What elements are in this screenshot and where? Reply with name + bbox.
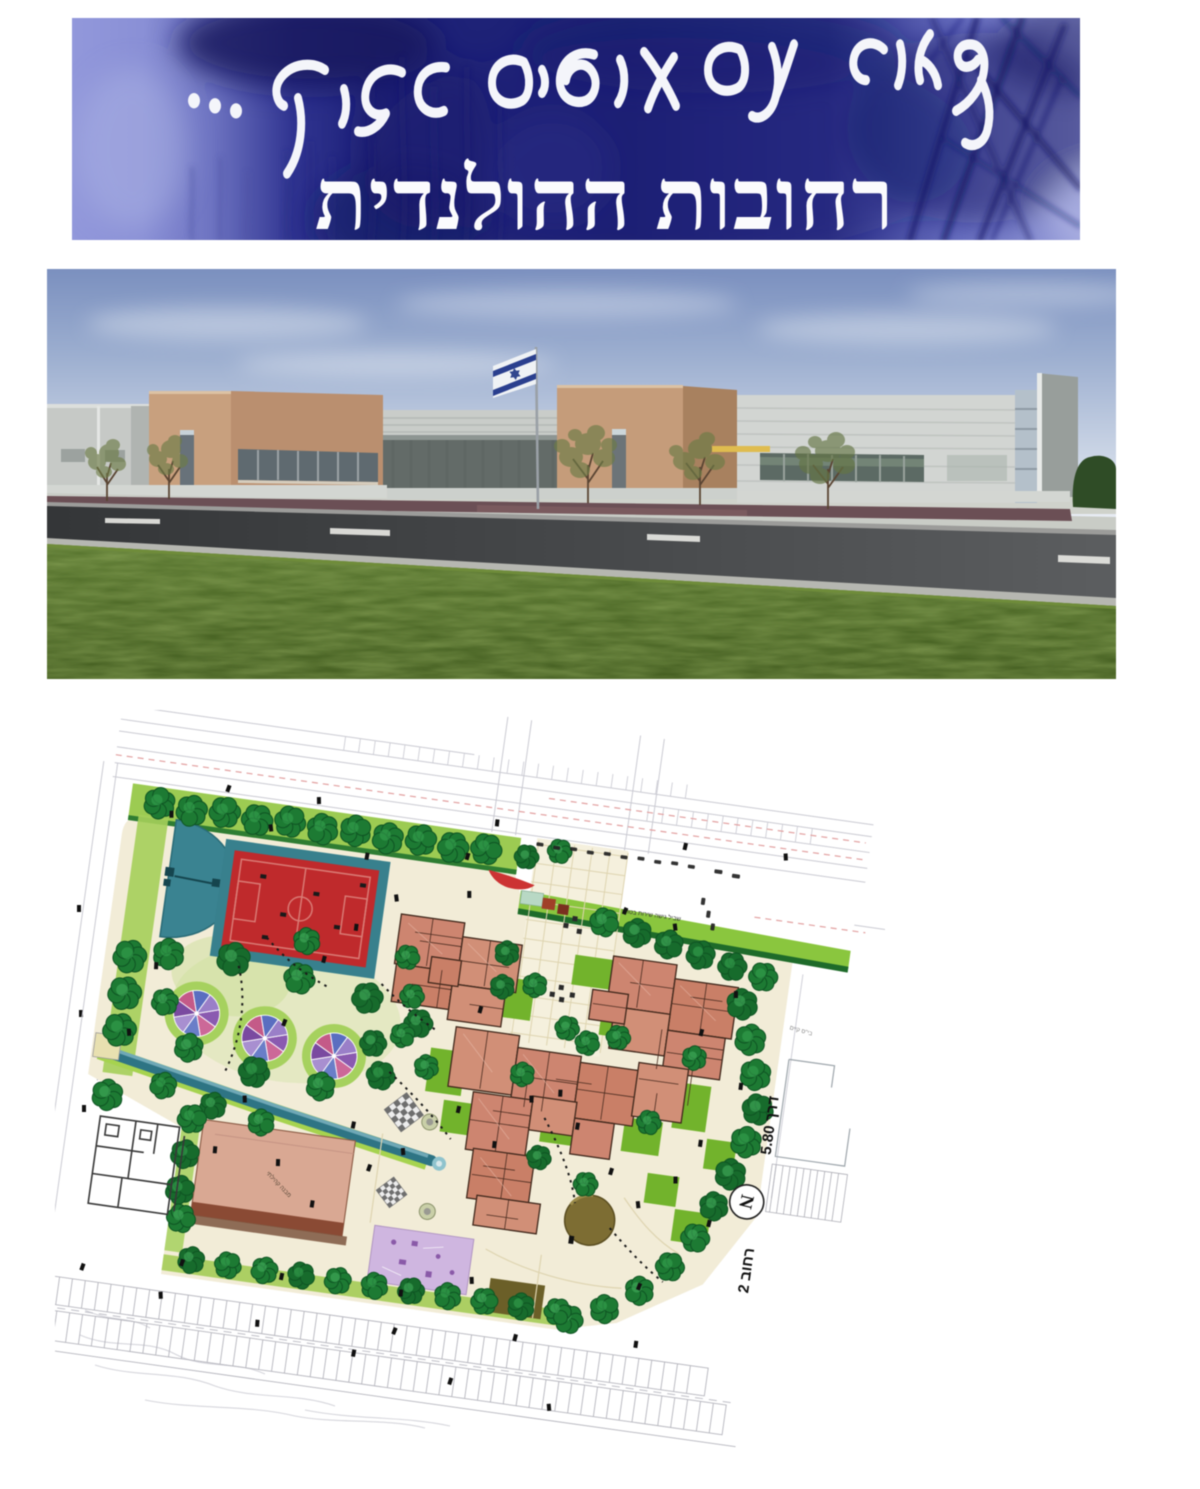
svg-text:רחוב 2: רחוב 2 [735, 1247, 758, 1294]
svg-text:רחובות ההולנדית: רחובות ההולנדית [315, 152, 896, 240]
svg-text:בי"ס קיים: בי"ס קיים [789, 1025, 814, 1037]
